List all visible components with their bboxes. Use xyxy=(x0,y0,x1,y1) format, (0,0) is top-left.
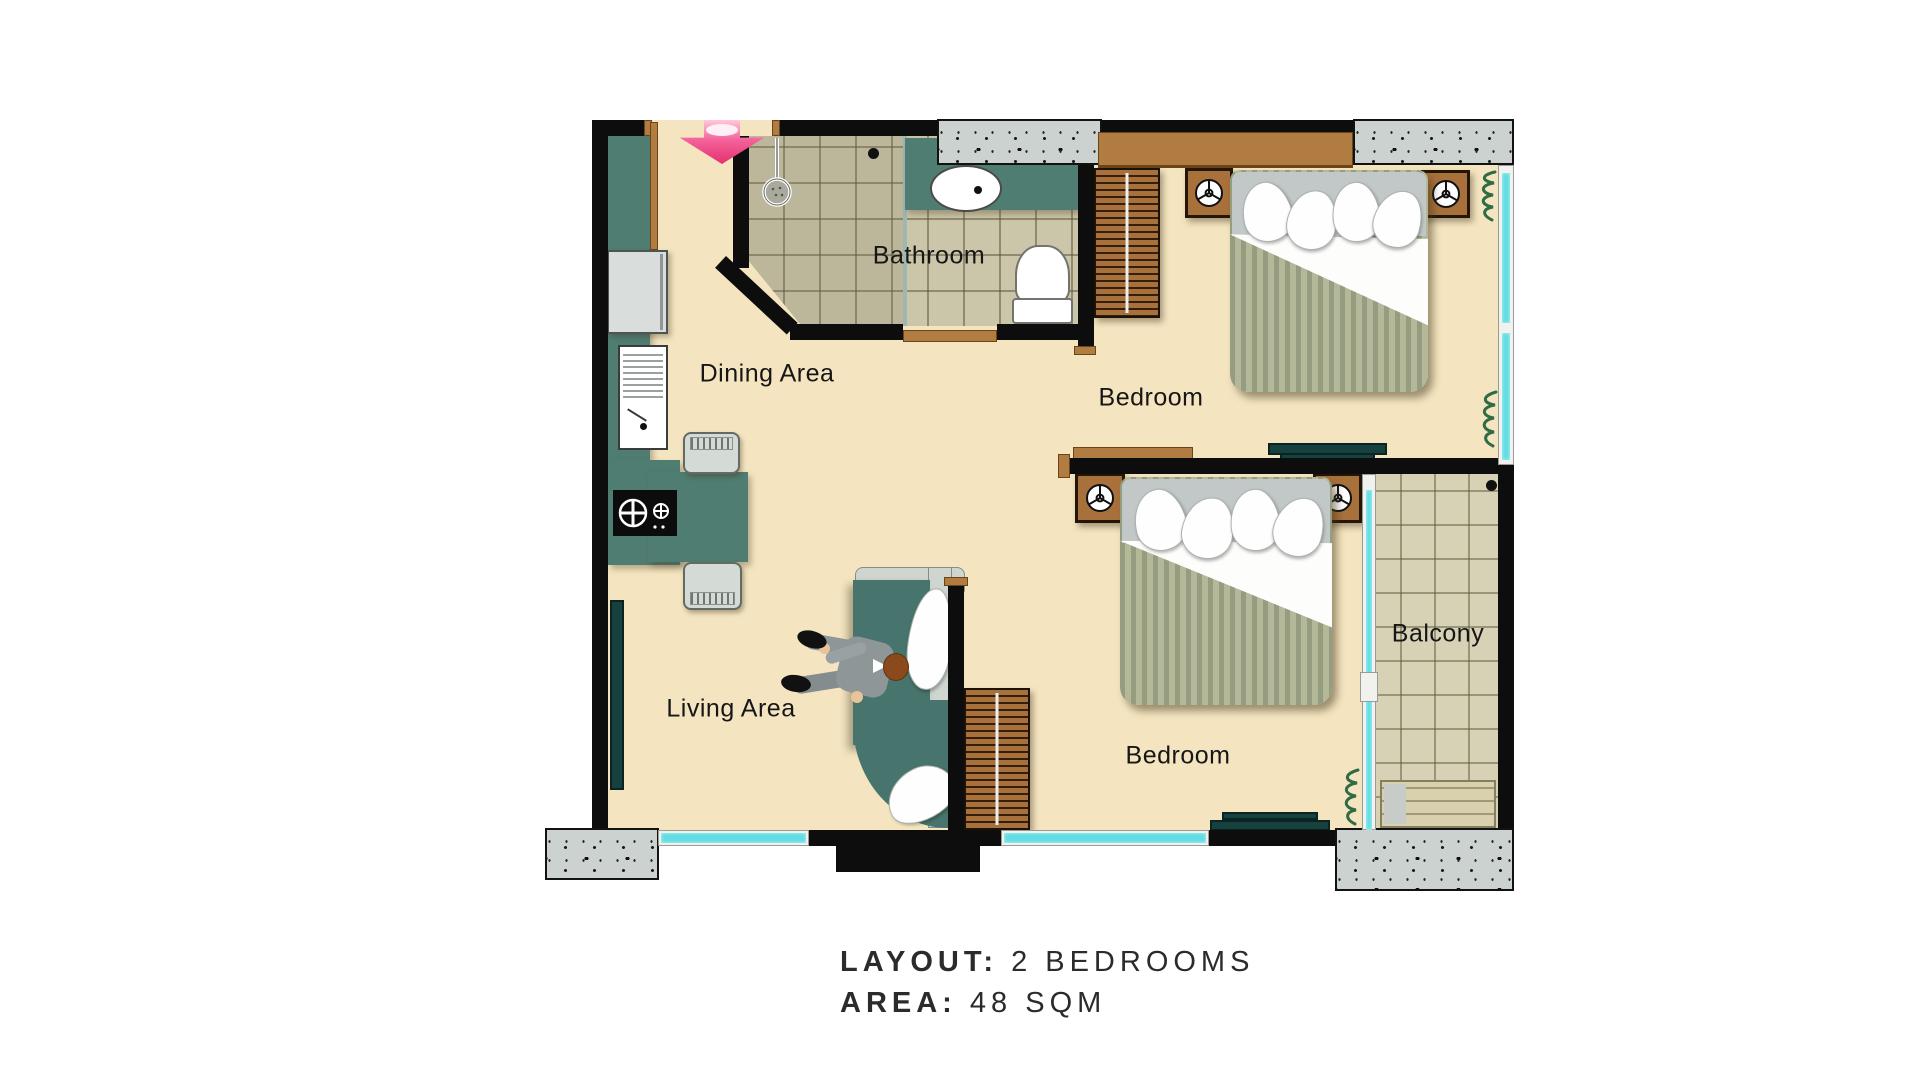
person-lying xyxy=(777,625,917,707)
caption-layout-line: LAYOUT: 2 BEDROOMS xyxy=(840,942,1254,983)
layout-label: LAYOUT: xyxy=(840,946,998,978)
wall-bathroom-left xyxy=(733,136,749,268)
bench-pad xyxy=(1384,784,1406,824)
concrete-column xyxy=(545,828,659,880)
window-bedroom-bottom xyxy=(1004,833,1206,843)
drain-icon xyxy=(1486,480,1497,491)
balcony-door-handle xyxy=(1360,672,1378,702)
plant-icon xyxy=(1473,170,1501,224)
entrance-jamb-right xyxy=(772,120,780,136)
window-bedroom-top-1 xyxy=(1502,173,1510,323)
chair-backrest xyxy=(690,592,735,605)
person-head xyxy=(883,653,909,681)
wardrobe-bedroom-bottom xyxy=(964,688,1030,830)
wall-living-bedroom xyxy=(948,585,964,830)
living-wall-jamb xyxy=(944,577,968,586)
kitchen-sink-unit xyxy=(618,345,668,450)
refrigerator xyxy=(607,250,668,334)
drawer-lines xyxy=(623,350,663,398)
room-label-bedroom-top: Bedroom xyxy=(1099,384,1204,413)
balcony-floor xyxy=(1368,474,1498,830)
area-label: AREA: xyxy=(840,987,957,1019)
wardrobe-bedroom-top xyxy=(1094,168,1160,318)
stove-burner-icon xyxy=(617,496,675,532)
drain-icon xyxy=(868,148,879,159)
closet-bedroom-top xyxy=(1098,132,1353,168)
nightstand xyxy=(1421,170,1470,218)
bed-bedroom-bottom xyxy=(1120,477,1332,705)
bedside-lamp-icon xyxy=(1084,482,1116,514)
shower-head-icon xyxy=(760,138,794,210)
wall-bedroom-divider xyxy=(1066,458,1514,474)
concrete-column xyxy=(1335,828,1514,891)
room-label-living: Living Area xyxy=(666,695,795,724)
wall-bathroom-bedroom xyxy=(1078,136,1094,350)
caption-area-line: AREA: 48 SQM xyxy=(840,983,1254,1024)
balcony-sliding-door xyxy=(1366,490,1372,830)
window-living xyxy=(661,833,806,843)
layout-value: 2 BEDROOMS xyxy=(1011,946,1254,978)
toilet-bowl xyxy=(1015,245,1070,305)
bedroom-top-door-jamb xyxy=(1074,346,1096,355)
room-label-bathroom: Bathroom xyxy=(873,242,985,271)
nightstand xyxy=(1075,473,1125,523)
room-label-balcony: Balcony xyxy=(1392,620,1484,649)
divider-door-jamb xyxy=(1058,454,1070,478)
faucet-arm xyxy=(627,408,647,421)
concrete-column xyxy=(937,119,1102,165)
dining-chair-south xyxy=(683,562,742,610)
balcony-bench xyxy=(1380,780,1496,828)
cooktop xyxy=(613,490,677,536)
concrete-column xyxy=(1353,119,1514,165)
tv-stand-bedroom-bottom xyxy=(1222,812,1318,820)
entrance-door-leaf xyxy=(650,122,658,250)
chair-backrest xyxy=(690,437,733,450)
tv-living-area xyxy=(610,600,624,790)
refrigerator-handle xyxy=(660,254,663,330)
plan-caption: LAYOUT: 2 BEDROOMS AREA: 48 SQM xyxy=(840,942,1254,1024)
bathroom-sink xyxy=(930,165,1002,212)
wall-left xyxy=(592,120,608,846)
sink-drain xyxy=(974,186,982,194)
wall-bottom-pier xyxy=(836,830,980,872)
wall-bathroom-bottom-left xyxy=(790,324,903,340)
room-label-dining: Dining Area xyxy=(700,360,835,389)
faucet-icon xyxy=(640,423,647,430)
area-value: 48 SQM xyxy=(970,987,1106,1019)
bathroom-door-threshold xyxy=(903,330,997,342)
bedside-lamp-icon xyxy=(1430,178,1462,210)
toilet-tank xyxy=(1012,298,1073,324)
plant-icon xyxy=(1336,768,1364,828)
nightstand xyxy=(1185,168,1233,218)
room-label-bedroom-bottom: Bedroom xyxy=(1126,742,1231,771)
person-hand xyxy=(851,691,863,703)
window-bedroom-top-2 xyxy=(1502,333,1510,460)
dining-chair-north xyxy=(683,432,740,474)
bedside-lamp-icon xyxy=(1193,177,1225,209)
floor-plan: Bathroom Dining Area Bedroom Bedroom Liv… xyxy=(592,120,1514,846)
bed-bedroom-top xyxy=(1230,170,1428,392)
